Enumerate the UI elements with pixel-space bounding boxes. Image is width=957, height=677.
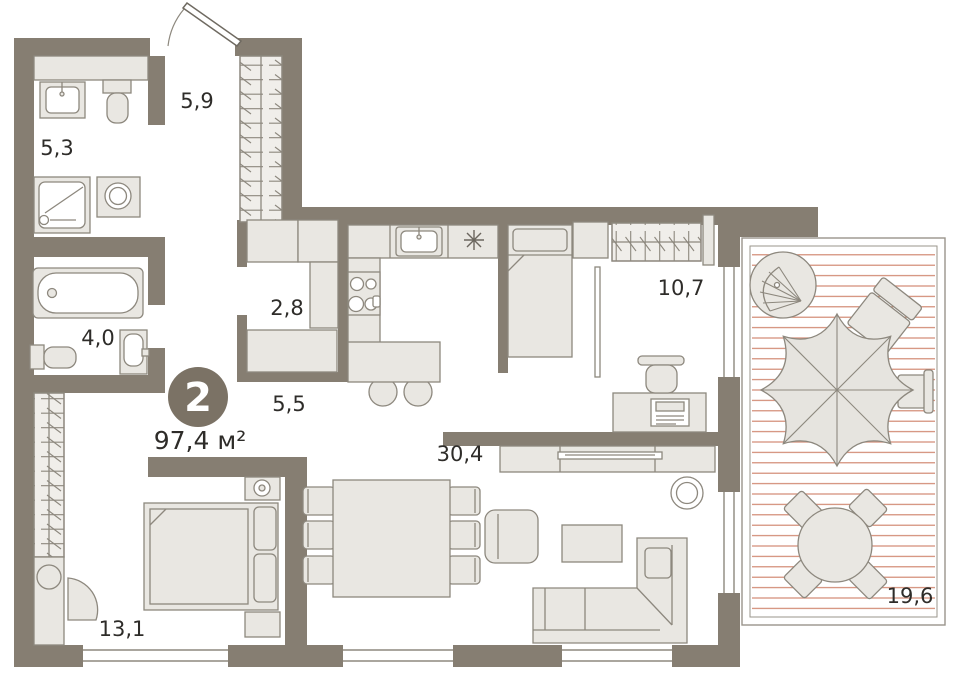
window-dining — [343, 650, 453, 661]
desk-icon — [613, 393, 706, 432]
tv-console — [500, 446, 715, 472]
shower-icon — [34, 177, 90, 233]
label-bedroom-small: 10,7 — [658, 276, 705, 300]
terrace — [742, 238, 945, 625]
bedroom1-dresser — [34, 557, 64, 645]
wardrobe-side-panel — [703, 215, 714, 265]
label-closet-hall: 2,8 — [270, 296, 303, 320]
dining-chair — [448, 521, 480, 549]
wall-bath2-bottom — [14, 375, 148, 393]
wall-top-main — [297, 207, 740, 225]
label-entry-hall: 5,9 — [180, 89, 213, 113]
plan-badge: 2 97,4 м² — [154, 367, 247, 455]
kitchen-island — [348, 342, 440, 382]
wall-top-bath — [14, 38, 150, 56]
window-living — [562, 650, 672, 661]
wall-right-pier2 — [718, 377, 740, 492]
wall-hall-right — [282, 38, 302, 222]
wall-bottom-pier3 — [453, 645, 562, 667]
wall-bottom-pier2 — [228, 645, 343, 667]
sink-icon — [120, 330, 149, 374]
bedroom-small-furniture — [508, 215, 714, 432]
entrance-door — [168, 3, 241, 46]
label-terrace: 19,6 — [887, 584, 934, 608]
living-room-furniture — [303, 446, 715, 643]
floor-vase-icon — [671, 477, 703, 509]
wall-bedroom1-top — [148, 457, 307, 477]
dining-table-set — [303, 480, 480, 597]
dining-table — [333, 480, 450, 597]
wall-closet-left-a — [237, 220, 247, 267]
nightstand-with-lamp — [245, 477, 280, 500]
wall-bath1-right — [148, 56, 165, 125]
nightstand — [573, 222, 608, 258]
bedroom2-wardrobe-icon — [612, 223, 701, 261]
cabinet — [247, 330, 337, 372]
window-bedroom1 — [83, 650, 228, 661]
kitchen-furniture — [348, 225, 498, 406]
dining-chair — [448, 556, 480, 584]
kitchen-sink-icon — [396, 227, 442, 256]
wall-bath2-right-a — [148, 257, 165, 305]
washing-machine-icon — [97, 177, 140, 217]
single-bed-icon — [508, 225, 572, 357]
door-swing-arc — [168, 9, 184, 46]
terrace-round-table — [798, 508, 872, 582]
label-bathroom-top: 5,3 — [40, 136, 73, 160]
wall-bedroom2-left — [498, 220, 508, 373]
door-leaf — [183, 3, 241, 46]
vanity-counter — [34, 56, 148, 80]
terrace-door — [724, 492, 734, 593]
nightstand — [245, 612, 280, 637]
total-area-label: 97,4 м² — [154, 426, 247, 455]
cabinet — [310, 262, 338, 328]
dining-chair — [303, 521, 335, 549]
wall-kitchen-left — [338, 220, 348, 382]
bedroom1-wardrobe-icon — [34, 393, 64, 557]
parasol-umbrella — [761, 314, 913, 466]
sliding-door-leaf — [595, 267, 600, 377]
wall-closet-bottom — [243, 372, 348, 382]
coffee-table — [562, 525, 622, 562]
label-bathroom-main: 4,0 — [81, 326, 114, 350]
desk-chair-icon — [638, 356, 684, 393]
stove-icon — [348, 272, 380, 315]
pillow — [254, 554, 276, 602]
label-bedroom-master: 13,1 — [99, 617, 146, 641]
window-bedroom2 — [724, 267, 734, 377]
badge-room-count: 2 — [184, 375, 212, 421]
floor-plan: 2 97,4 м² 5,3 5,9 2,8 4,0 5,5 10,7 30,4 … — [0, 0, 957, 677]
bathtub-icon — [33, 268, 143, 318]
label-corridor: 5,5 — [272, 392, 305, 416]
armchair-icon — [485, 510, 538, 563]
hanging-egg-chair — [750, 252, 816, 318]
fridge-icon — [464, 230, 484, 250]
toilet-icon — [30, 345, 76, 369]
wall-bath1-bottom — [14, 237, 165, 257]
label-living-kitchen: 30,4 — [437, 442, 484, 466]
wall-bottom-pier4 — [672, 645, 740, 667]
cabinet — [247, 220, 298, 262]
wall-bottom-pier1 — [14, 645, 83, 667]
toilet-icon — [103, 80, 131, 123]
pillow — [254, 507, 276, 550]
wall-closet-left-b — [237, 315, 247, 382]
dining-chair — [303, 487, 335, 515]
bedroom1-chair — [68, 578, 98, 620]
wall-right-pier1 — [718, 225, 740, 267]
cabinet — [298, 220, 338, 262]
sink-icon — [40, 82, 85, 118]
hall-wardrobe-icon — [240, 56, 282, 222]
dining-chair — [448, 487, 480, 515]
double-bed-icon — [144, 503, 278, 610]
wall-top-terrace — [740, 207, 818, 237]
dining-chair — [303, 556, 335, 584]
wall-bedroom2-bottom — [443, 432, 718, 446]
wall-bath2-right-b — [148, 348, 165, 393]
bathroom-main-fixtures — [30, 268, 149, 374]
